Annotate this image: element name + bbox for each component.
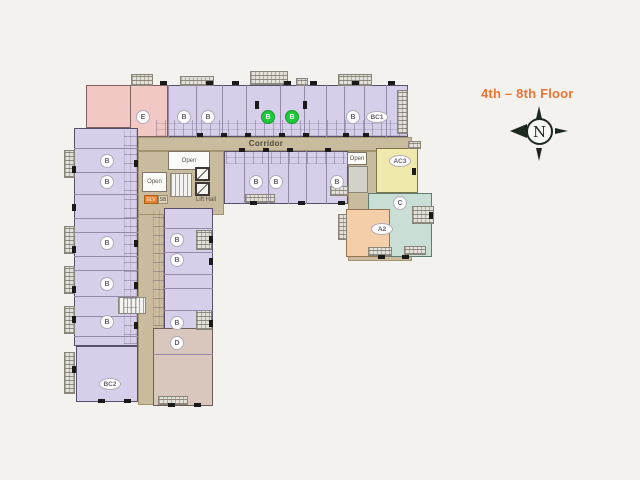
unit-label-B: B (170, 233, 184, 247)
unit-divider (326, 85, 327, 137)
unit-label-B: B (100, 277, 114, 291)
sb-box-label: SB (159, 196, 167, 203)
wall-opening-mark (72, 204, 76, 211)
wall-opening-mark (232, 81, 239, 85)
wall-opening-mark (298, 201, 305, 205)
unit-divider (74, 172, 138, 173)
unit-divider (196, 85, 197, 137)
open-area-right-label: Open (348, 153, 366, 164)
wall-opening-mark (72, 366, 76, 373)
elv-box-label: ELV (145, 196, 157, 203)
unit-divider (268, 151, 269, 204)
balcony (408, 141, 421, 149)
unit-label-A2: A2 (371, 223, 393, 235)
unit-label-B: B (269, 175, 283, 189)
unit-divider (164, 288, 213, 289)
wall-opening-mark (255, 101, 259, 109)
wall-opening-mark (352, 81, 359, 85)
unit-label-B: B (249, 175, 263, 189)
unit-divider (164, 252, 213, 253)
compass-icon: N (508, 106, 568, 162)
wall-opening-mark (134, 282, 138, 289)
wall-opening-mark (209, 320, 213, 327)
wall-opening-mark (134, 322, 138, 329)
wall-opening-mark (287, 148, 293, 152)
wall-opening-mark (429, 212, 433, 219)
balcony (404, 246, 426, 255)
unit-divider (326, 151, 327, 204)
wall-opening-mark (412, 168, 416, 175)
unit-divider (164, 274, 213, 275)
balcony (296, 78, 308, 86)
unit-label-E: E (136, 110, 150, 124)
unit-divider (280, 85, 281, 137)
stairs-core (170, 173, 192, 197)
unit-divider (386, 85, 387, 137)
wall-opening-mark (209, 236, 213, 243)
unit-divider (168, 85, 169, 137)
unit-divider (74, 270, 138, 271)
wall-opening-mark (363, 133, 369, 137)
balcony (131, 74, 153, 86)
lift-hall-label: Lift Hall (196, 197, 230, 203)
wall-opening-mark (343, 133, 349, 137)
unit-label-AC3: AC3 (389, 155, 411, 167)
unit-divider (246, 85, 247, 137)
unit-label-B: B (170, 253, 184, 267)
unit-divider (74, 296, 138, 297)
unit-label-D: D (170, 336, 184, 350)
wall-opening-mark (239, 148, 245, 152)
unit-label-B: B (100, 315, 114, 329)
unit-label-B: B (100, 236, 114, 250)
unit-label-B: B (201, 110, 215, 124)
unit-divider (344, 85, 345, 137)
unit-label-B: B (177, 110, 191, 124)
unit-divider (74, 232, 138, 233)
wall-opening-mark (160, 81, 167, 85)
unit-divider (164, 228, 213, 229)
wall-opening-mark (206, 81, 213, 85)
wall-opening-mark (72, 316, 76, 323)
balcony (64, 150, 75, 178)
bath-detail-inner-column (153, 210, 164, 326)
unit-divider (288, 151, 289, 204)
open-area-left: Open (142, 172, 167, 192)
unit-label-BC2: BC2 (99, 378, 121, 390)
wall-opening-mark (221, 133, 227, 137)
balcony (250, 71, 288, 85)
open-area-left-label: Open (143, 173, 166, 191)
unit-label-C: C (393, 196, 407, 210)
unit-divider (164, 310, 213, 311)
wall-opening-mark (197, 133, 203, 137)
unit-divider (244, 151, 245, 204)
lift-shaft-1 (195, 167, 210, 181)
unit-divider (222, 85, 223, 137)
available-unit-marker-B[interactable]: B (285, 110, 299, 124)
available-unit-marker-B[interactable]: B (261, 110, 275, 124)
wall-opening-mark (209, 258, 213, 265)
unit-divider (304, 85, 305, 137)
unit-label-B: B (100, 154, 114, 168)
unit-divider (364, 85, 365, 137)
compass-east-point (555, 128, 568, 134)
unit-divider (74, 194, 138, 195)
lift-shaft-2 (195, 182, 210, 196)
wall-opening-mark (72, 166, 76, 173)
unit-divider (74, 148, 138, 149)
unit-label-B: B (100, 175, 114, 189)
wall-opening-mark (325, 148, 331, 152)
unit-label-B: B (330, 175, 344, 189)
wall-opening-mark (263, 148, 269, 152)
wall-opening-mark (338, 201, 345, 205)
wall-opening-mark (378, 255, 385, 259)
wall-opening-mark (245, 133, 251, 137)
unit-divider (74, 218, 138, 219)
service-shaft (348, 166, 368, 193)
wall-opening-mark (98, 399, 105, 403)
unit-BC2 (76, 346, 138, 402)
corridor-label: Corridor (238, 139, 294, 148)
sb-box: SB (158, 195, 168, 204)
wall-opening-mark (168, 403, 175, 407)
wall-opening-mark (250, 201, 257, 205)
compass-n-letter: N (533, 123, 546, 141)
floor-plan-page: OpenOpenOpenELVSBEBBBBBBC1BBBBBBBBBC2BBB… (0, 0, 640, 480)
wall-opening-mark (279, 133, 285, 137)
unit-divider (74, 256, 138, 257)
wall-opening-mark (402, 255, 409, 259)
unit-divider (74, 336, 138, 337)
unit-divider (306, 151, 307, 204)
unit-label-BC1: BC1 (366, 111, 388, 123)
balcony (338, 214, 347, 240)
balcony (64, 352, 75, 394)
wall-opening-mark (284, 81, 291, 85)
wall-opening-mark (388, 81, 395, 85)
compass-west-arrow (510, 124, 527, 138)
wall-opening-mark (303, 101, 307, 109)
open-area-right: Open (347, 152, 367, 165)
wall-opening-mark (124, 399, 131, 403)
unit-label-B: B (170, 316, 184, 330)
unit-label-B: B (346, 110, 360, 124)
wall-opening-mark (310, 81, 317, 85)
wall-opening-mark (303, 133, 309, 137)
wall-opening-mark (72, 246, 76, 253)
page-title: 4th – 8th Floor (481, 86, 574, 101)
compass-ring: N (526, 118, 553, 145)
wall-opening-mark (134, 240, 138, 247)
balcony (397, 90, 408, 134)
wall-opening-mark (72, 286, 76, 293)
unit-divider (153, 354, 213, 355)
elv-box: ELV (144, 195, 158, 204)
compass-south-point (536, 148, 542, 161)
wall-opening-mark (194, 403, 201, 407)
wall-opening-mark (134, 160, 138, 167)
